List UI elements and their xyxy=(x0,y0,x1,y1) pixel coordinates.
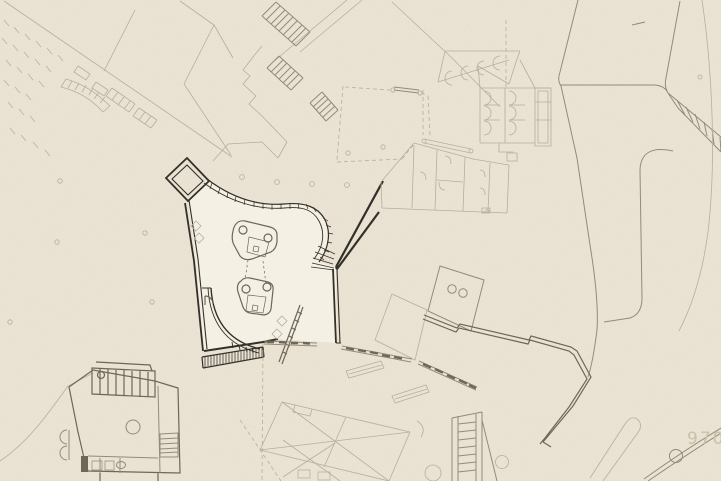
site-plan-page: 9700 xyxy=(0,0,721,481)
ll-solid-core xyxy=(81,456,88,472)
elevation-label: 9700 xyxy=(687,429,721,449)
site-plan-canvas: 9700 xyxy=(0,0,721,481)
